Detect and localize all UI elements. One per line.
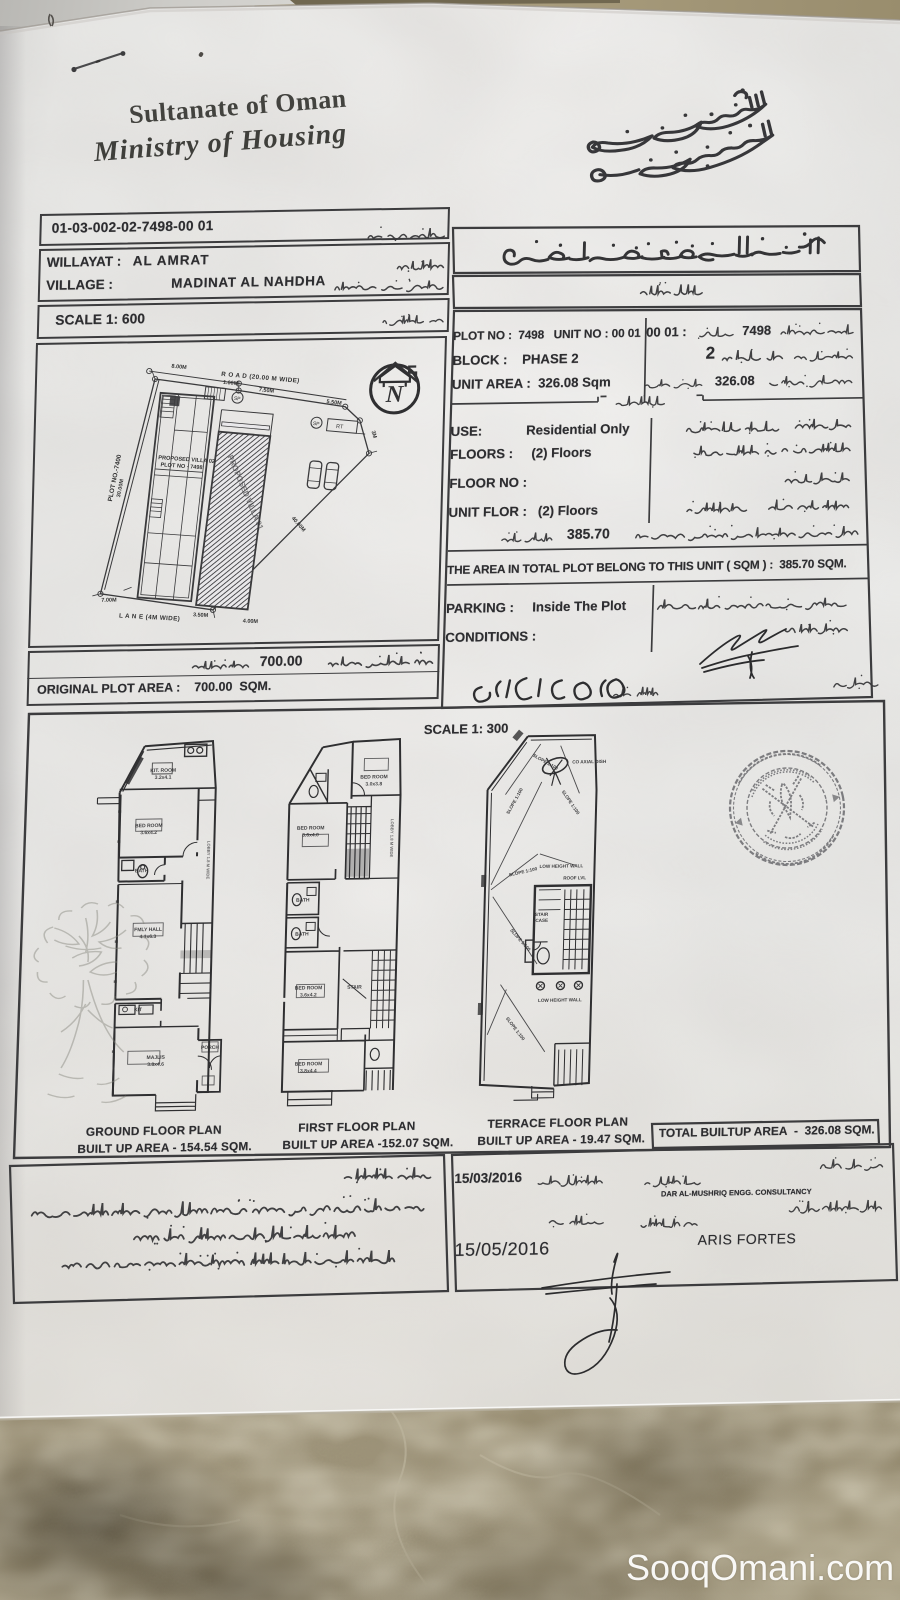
svg-text:BATH: BATH [135,868,149,874]
svg-text:CO AXIAL DISH: CO AXIAL DISH [572,759,607,765]
svg-text:SLOPE 1:100: SLOPE 1:100 [509,866,538,877]
svg-text:BED ROOM: BED ROOM [295,985,323,991]
svg-text:3.6x4.0: 3.6x4.0 [302,832,319,838]
svg-text:KIT. ROOM: KIT. ROOM [150,768,176,774]
svg-text:LOW HEIGHT WALL: LOW HEIGHT WALL [539,863,583,869]
svg-text:3.6x4.2: 3.6x4.2 [140,830,157,836]
svg-text:BED ROOM: BED ROOM [360,774,388,780]
svg-text:3.6x4.2: 3.6x4.2 [300,992,317,998]
svg-text:LOW HEIGHT WALL: LOW HEIGHT WALL [538,997,582,1003]
svg-text:SLOPE 1:100: SLOPE 1:100 [561,789,581,815]
svg-text:STAIR: STAIR [347,985,362,991]
svg-text:BATH: BATH [296,897,310,903]
svg-text:CASE: CASE [535,918,548,923]
svg-text:STAIR: STAIR [535,912,549,917]
svg-text:SLOPE 1:100: SLOPE 1:100 [505,1016,526,1042]
svg-text:3.8x4.4: 3.8x4.4 [300,1068,317,1074]
svg-text:LOBBY 1.8 M WIDE: LOBBY 1.8 M WIDE [205,841,211,880]
svg-text:ROOF LVL: ROOF LVL [563,875,586,880]
svg-text:3.2x4.1: 3.2x4.1 [155,775,172,781]
svg-text:BATH: BATH [295,931,309,937]
svg-text:3.0x3.8: 3.0x3.8 [365,781,382,787]
svg-text:BED ROOM: BED ROOM [297,825,325,831]
svg-text:BED ROOM: BED ROOM [135,823,163,829]
svg-text:BED ROOM: BED ROOM [295,1061,323,1067]
svg-text:LOBBY 1.8 M WIDE: LOBBY 1.8 M WIDE [389,819,395,858]
svg-text:SLOPE 1:100: SLOPE 1:100 [532,753,559,771]
